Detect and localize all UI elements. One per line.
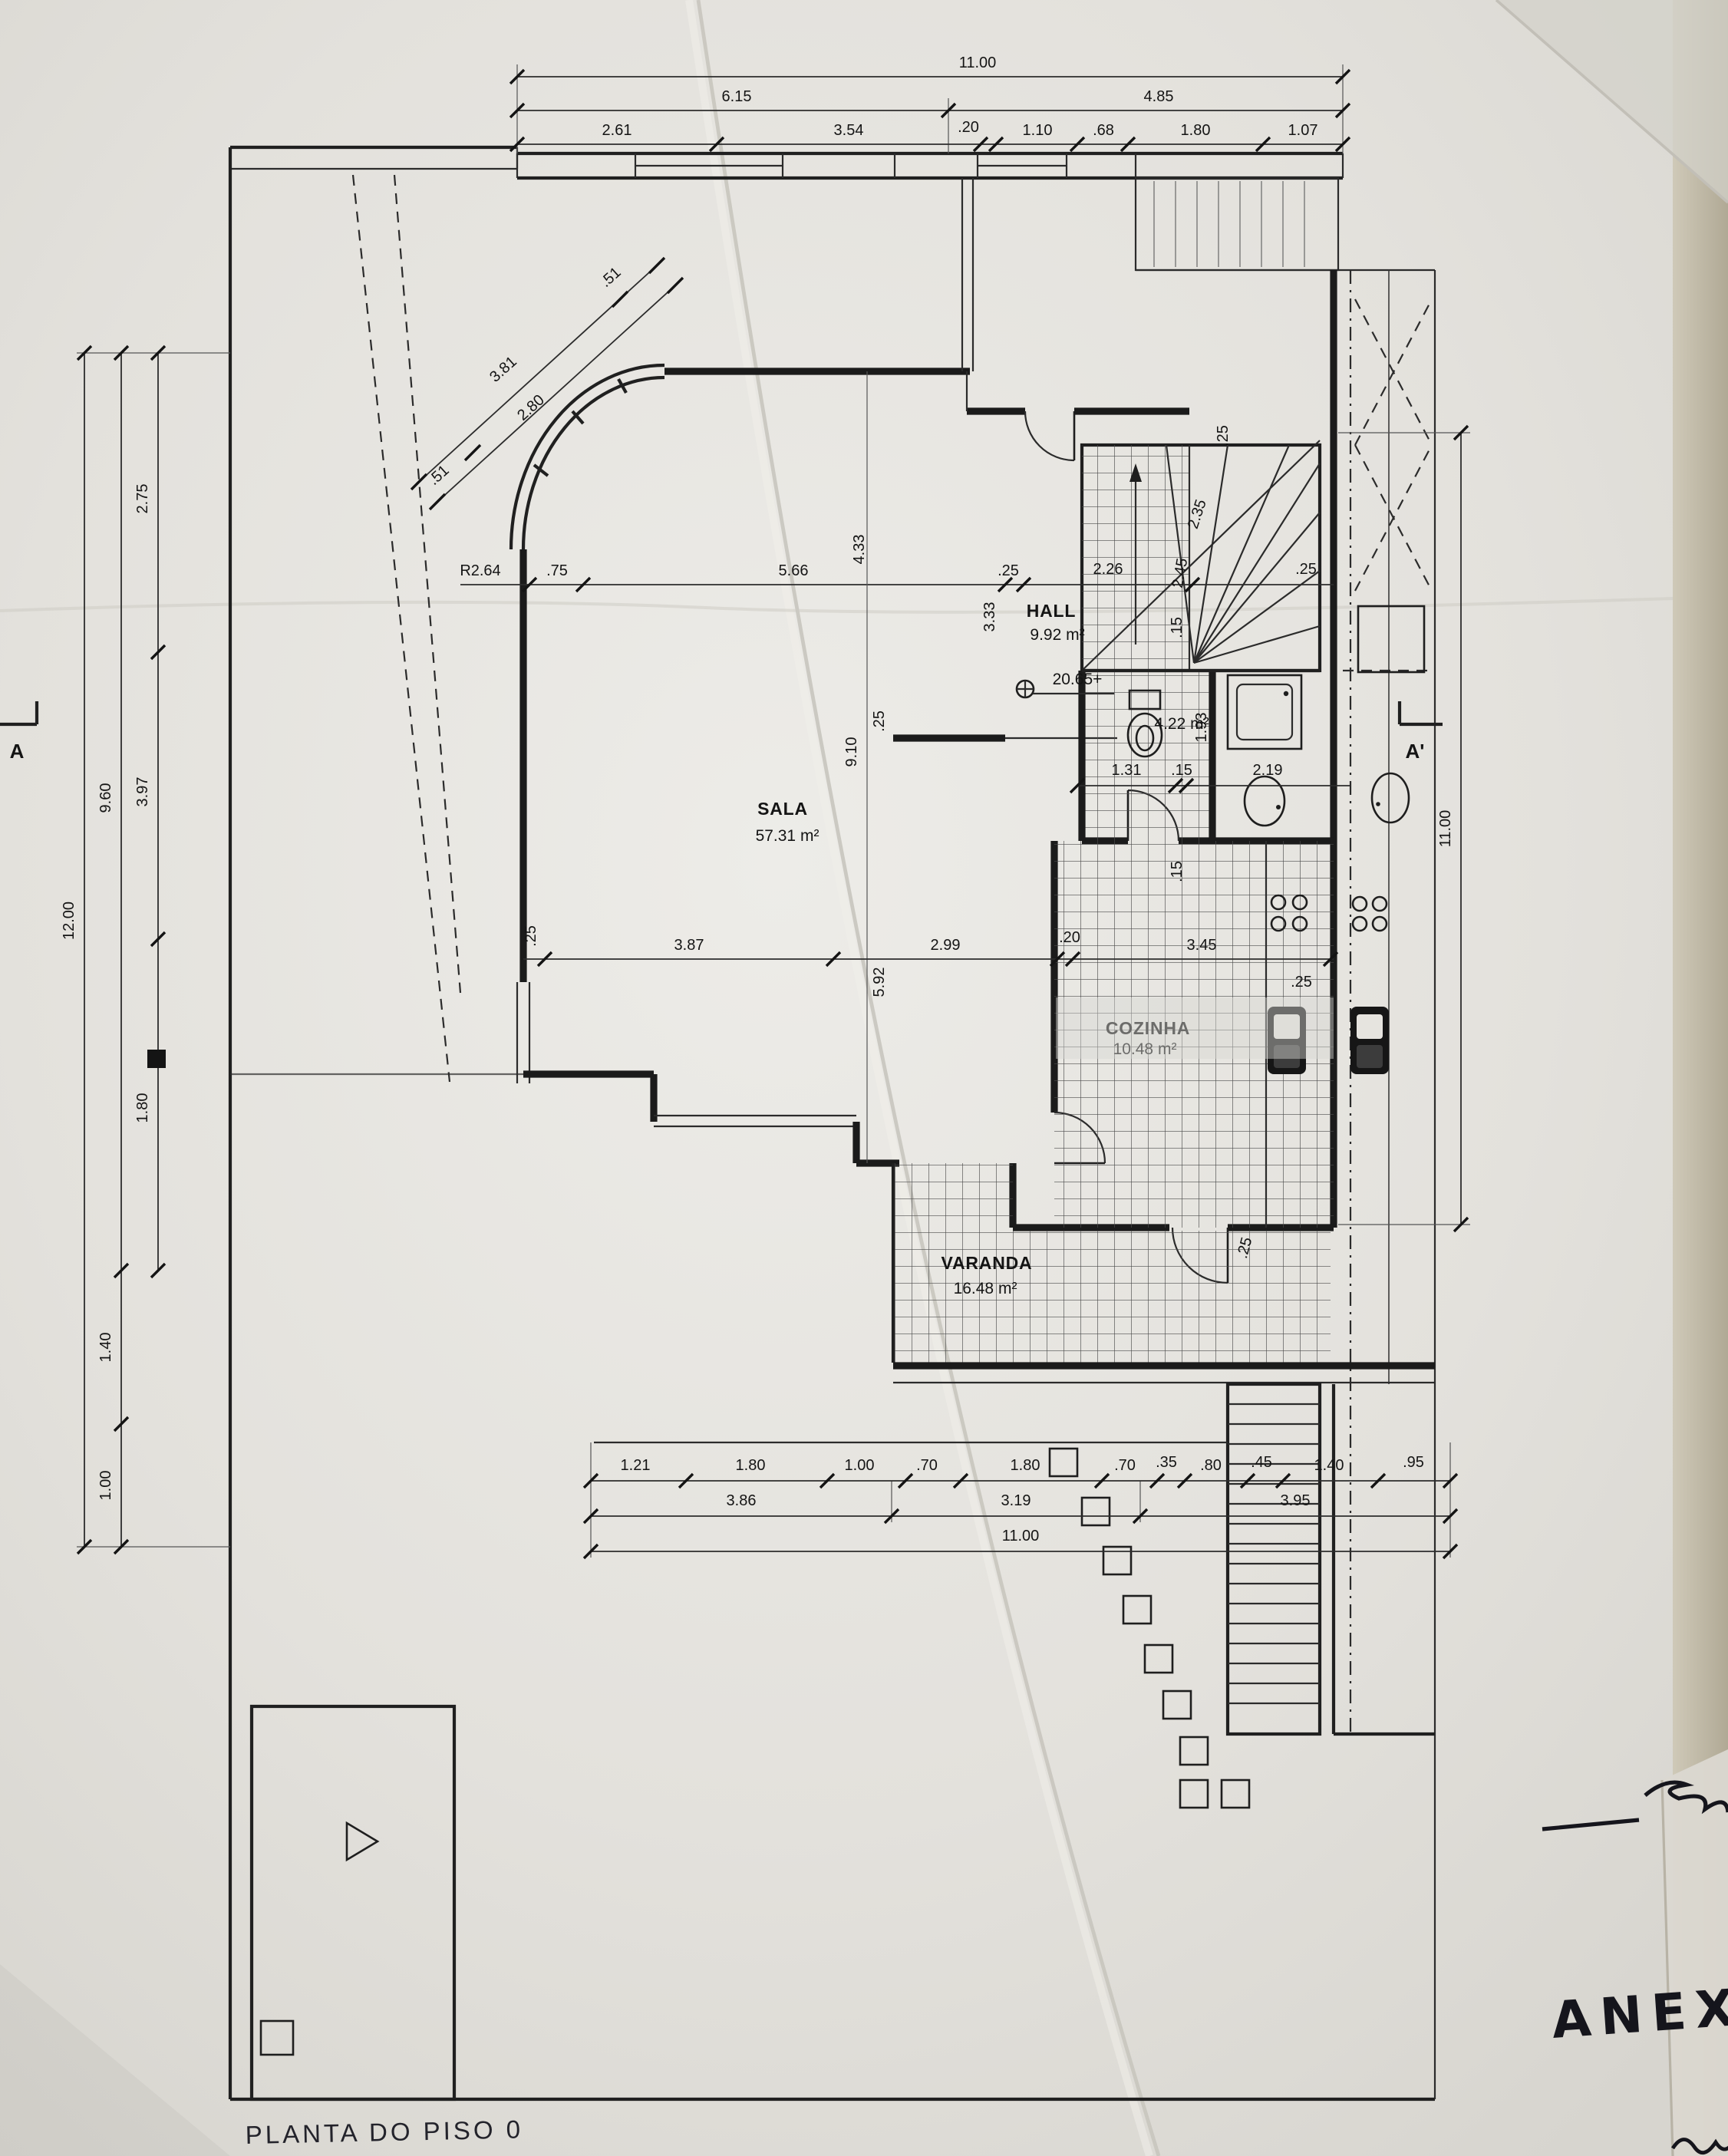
dim-bottom: 3.19 bbox=[1001, 1492, 1031, 1509]
section-label-a: A bbox=[10, 740, 25, 763]
dim-top: 4.85 bbox=[1144, 88, 1174, 105]
dim-stair-text: .25 bbox=[1215, 425, 1232, 447]
dim-kitchen: 3.45 bbox=[1187, 937, 1217, 954]
dim-bottom-total: 11.00 bbox=[1002, 1528, 1040, 1544]
dim-bottom: 1.21 bbox=[621, 1457, 651, 1474]
dim-left: 2.75 bbox=[134, 484, 151, 514]
dim-middle: 2.26 bbox=[1093, 561, 1123, 578]
dim-kitchen: .25 bbox=[1291, 974, 1312, 991]
dim-bottom: .80 bbox=[1200, 1457, 1222, 1474]
dim-bottom: .35 bbox=[1156, 1454, 1177, 1471]
floor-plan-drawing: A A' HALL 9.92 m² 20.65+ 4.22 m² SALA 57… bbox=[0, 0, 1728, 2156]
dim-wc: 2.19 bbox=[1253, 762, 1283, 779]
dim-bottom: 1.00 bbox=[845, 1457, 875, 1474]
dim-left: 1.80 bbox=[134, 1093, 151, 1123]
dim-sala-text: 5.92 bbox=[871, 968, 888, 997]
dim-sala-text: 9.10 bbox=[843, 737, 860, 767]
level-mark-value: 20.65+ bbox=[1053, 671, 1103, 688]
dim-kitchen: .20 bbox=[1059, 929, 1080, 946]
room-label-varanda: VARANDA bbox=[941, 1253, 1033, 1273]
dim-left: 1.40 bbox=[97, 1333, 114, 1363]
dim-kitchen: 3.87 bbox=[674, 937, 704, 954]
dim-bottom: 1.40 bbox=[1314, 1457, 1344, 1474]
dim-top: 1.07 bbox=[1288, 122, 1318, 139]
dim-left: 3.97 bbox=[134, 777, 151, 807]
dim-top: .68 bbox=[1093, 122, 1114, 139]
room-label-hall: HALL bbox=[1027, 601, 1077, 621]
dim-top-total: 11.00 bbox=[959, 54, 997, 71]
dim-left: 9.60 bbox=[97, 783, 114, 813]
photographed-floorplan-sheet: A A' HALL 9.92 m² 20.65+ 4.22 m² SALA 57… bbox=[0, 0, 1728, 2156]
dim-top: 1.80 bbox=[1181, 122, 1211, 139]
dim-wc: 1.31 bbox=[1112, 762, 1142, 779]
dim-kitchen: 2.99 bbox=[931, 937, 961, 954]
dim-middle: 5.66 bbox=[779, 562, 809, 579]
dim-bottom: .70 bbox=[916, 1457, 938, 1474]
dim-middle: .25 bbox=[998, 562, 1019, 579]
dim-wc: .15 bbox=[1169, 861, 1186, 882]
gate-post-symbol bbox=[147, 1050, 166, 1068]
dim-middle: 4.33 bbox=[851, 535, 868, 565]
dim-stair-text: .25 bbox=[1295, 561, 1317, 578]
dim-middle: .75 bbox=[546, 562, 568, 579]
dim-kitchen: .25 bbox=[523, 925, 539, 947]
photo-blur-streak bbox=[1056, 997, 1334, 1059]
section-label-a-prime: A' bbox=[1406, 740, 1425, 763]
dim-wc: .15 bbox=[1171, 762, 1192, 779]
room-area-sala: 57.31 m² bbox=[756, 827, 819, 845]
dim-bottom: 3.86 bbox=[727, 1492, 757, 1509]
dim-left: 1.00 bbox=[97, 1471, 114, 1501]
dim-bottom: .95 bbox=[1403, 1454, 1424, 1471]
dim-top: .20 bbox=[958, 119, 979, 136]
dim-middle: 3.33 bbox=[981, 602, 998, 632]
dim-right-total: 11.00 bbox=[1437, 810, 1454, 848]
dim-bottom: 1.80 bbox=[736, 1457, 766, 1474]
dim-bottom: 1.80 bbox=[1011, 1457, 1040, 1474]
dim-sala-text: .25 bbox=[871, 710, 888, 732]
paper-background bbox=[0, 0, 1728, 2156]
dim-stair-text: .15 bbox=[1169, 617, 1186, 638]
room-area-varanda: 16.48 m² bbox=[954, 1280, 1017, 1297]
dim-radius: R2.64 bbox=[460, 562, 500, 579]
dim-bottom: 3.95 bbox=[1281, 1492, 1311, 1509]
dim-wc: 1.93 bbox=[1193, 713, 1210, 743]
room-area-hall: 9.92 m² bbox=[1030, 626, 1084, 644]
dim-bottom: .70 bbox=[1114, 1457, 1136, 1474]
dim-top: 3.54 bbox=[834, 122, 864, 139]
plan-title: PLANTA DO PISO 0 bbox=[245, 2115, 523, 2149]
dim-top: 1.10 bbox=[1023, 122, 1053, 139]
room-label-sala: SALA bbox=[757, 799, 808, 819]
dim-bottom: .45 bbox=[1251, 1454, 1272, 1471]
dim-top: 6.15 bbox=[722, 88, 752, 105]
dim-left-total: 12.00 bbox=[61, 902, 77, 940]
dim-top: 2.61 bbox=[602, 122, 632, 139]
